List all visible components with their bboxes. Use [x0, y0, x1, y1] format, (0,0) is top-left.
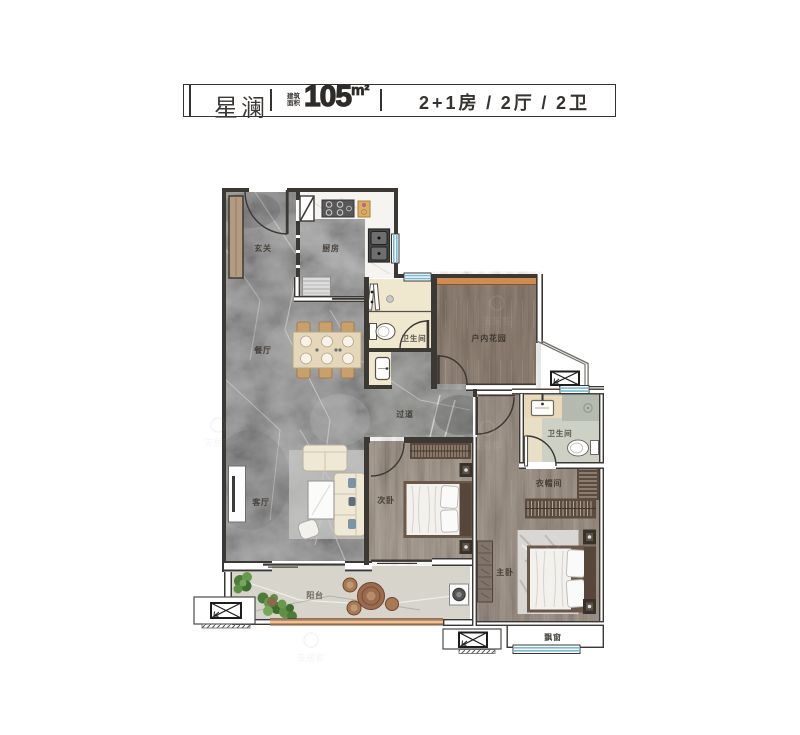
svg-text:安居客: 安居客	[204, 437, 231, 448]
svg-text:飘窗: 飘窗	[544, 632, 562, 642]
svg-text:厨房: 厨房	[322, 243, 340, 253]
svg-text:阳台: 阳台	[306, 590, 324, 600]
svg-text:安居客: 安居客	[539, 555, 566, 566]
svg-text:餐厅: 餐厅	[253, 345, 272, 355]
svg-text:安居客: 安居客	[271, 247, 298, 258]
svg-text:客厅: 客厅	[251, 497, 270, 507]
svg-text:玄关: 玄关	[254, 243, 272, 253]
svg-text:卫生间: 卫生间	[402, 333, 427, 343]
svg-text:卫生间: 卫生间	[548, 428, 573, 438]
svg-text:过道: 过道	[396, 409, 414, 419]
svg-text:安居客: 安居客	[297, 652, 324, 663]
svg-text:衣帽间: 衣帽间	[536, 478, 562, 488]
svg-text:次卧: 次卧	[377, 495, 395, 505]
svg-text:主卧: 主卧	[496, 567, 514, 577]
svg-text:安居客: 安居客	[473, 440, 500, 451]
svg-text:户内花园: 户内花园	[471, 333, 506, 343]
svg-text:安居客: 安居客	[483, 315, 510, 326]
